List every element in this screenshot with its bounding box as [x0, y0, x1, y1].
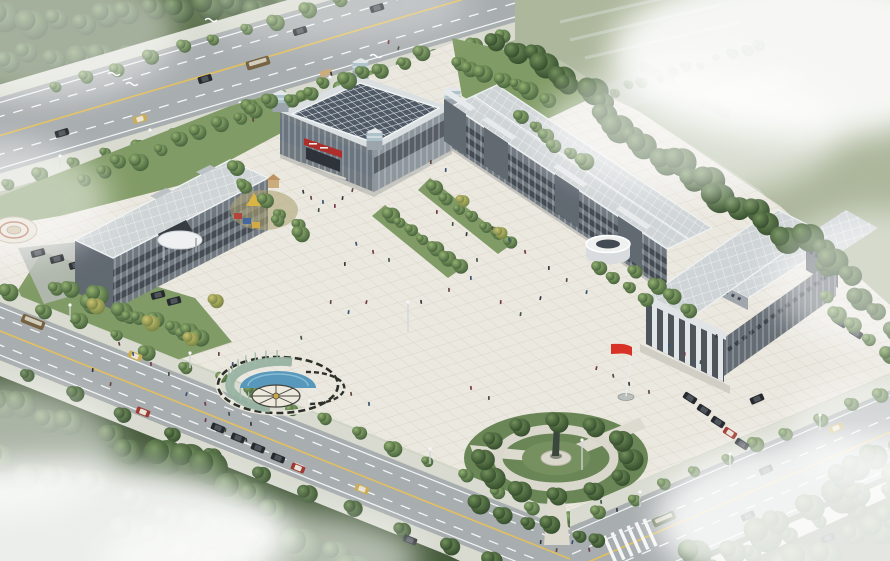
rendering-canvas: [0, 0, 890, 561]
aerial-rendering: [0, 0, 890, 561]
haze: [0, 0, 890, 561]
